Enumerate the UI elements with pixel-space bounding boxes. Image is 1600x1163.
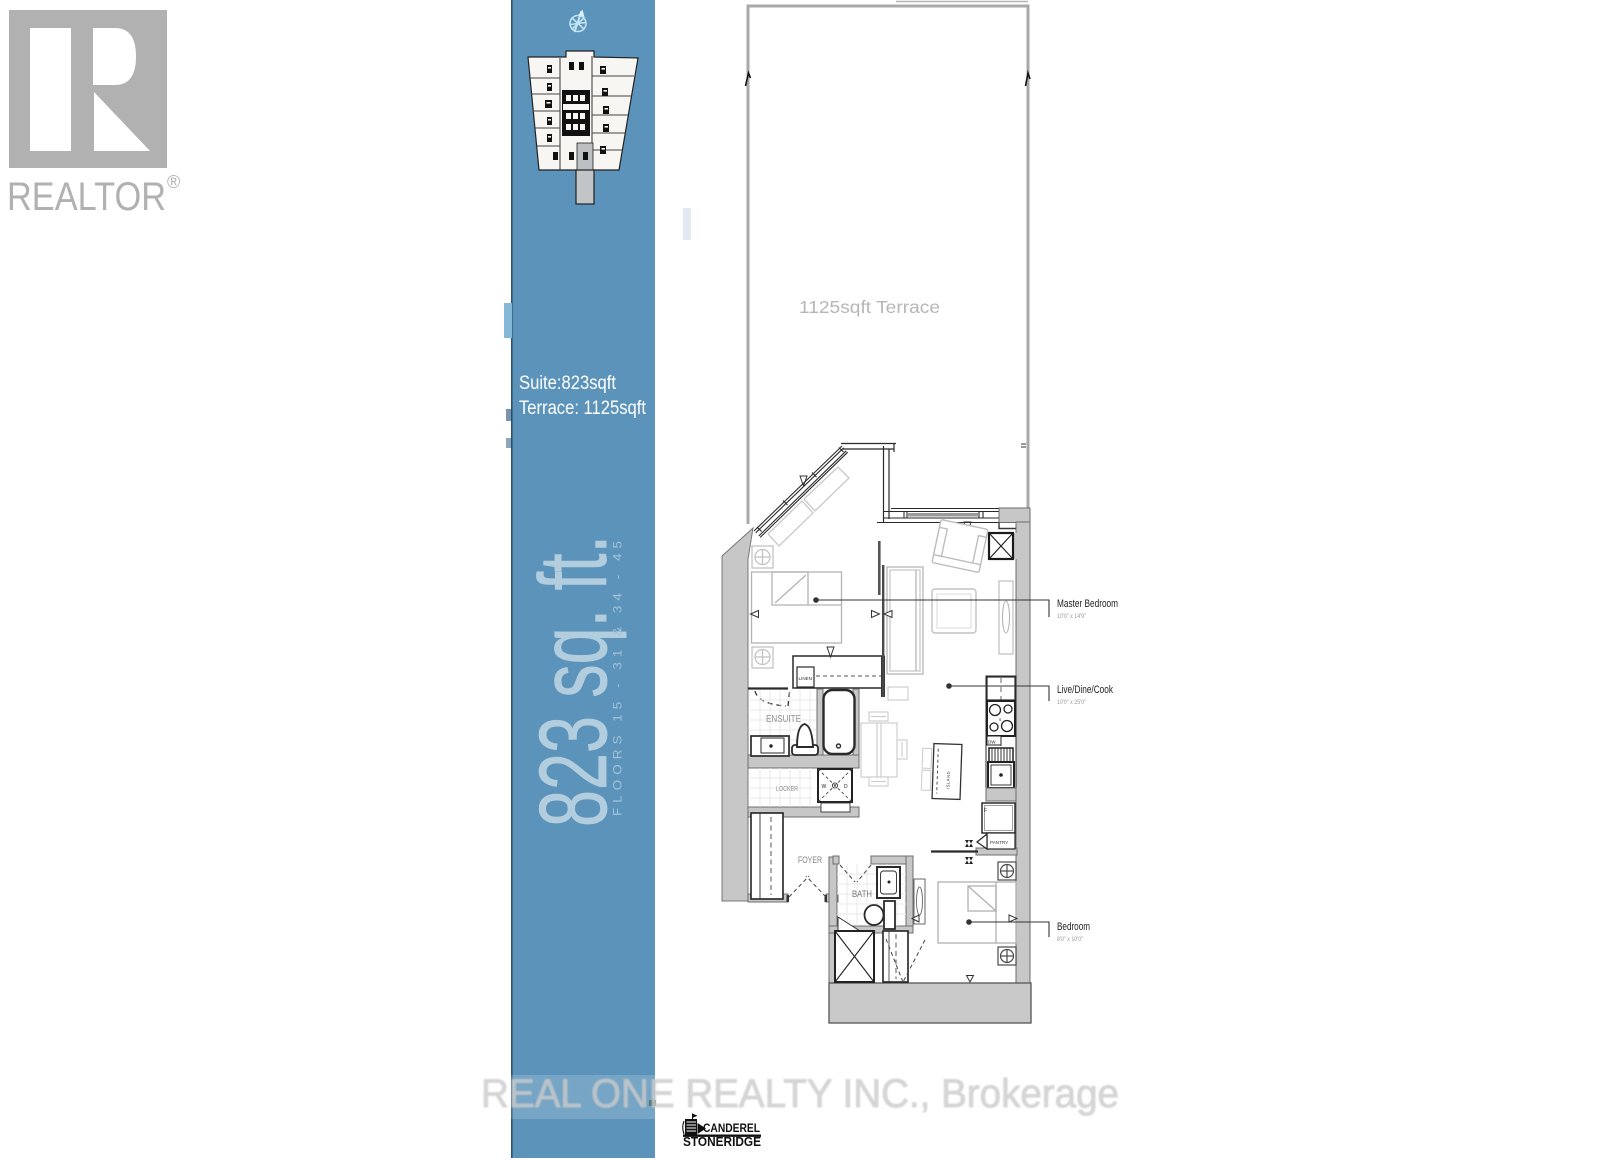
svg-text:1125sqft Terrace: 1125sqft Terrace (799, 297, 940, 317)
svg-text:FLOORS 15 - 31 & 34 - 45: FLOORS 15 - 31 & 34 - 45 (611, 536, 625, 816)
svg-text:REAL ONE REALTY INC., Brokerag: REAL ONE REALTY INC., Brokerage (481, 1072, 1119, 1116)
svg-text:FOYER: FOYER (798, 855, 822, 865)
svg-text:REALTOR: REALTOR (7, 175, 166, 219)
svg-text:D: D (844, 784, 848, 790)
svg-text:Bedroom: Bedroom (1057, 921, 1090, 933)
svg-text:®: ® (167, 172, 180, 192)
svg-text:STONERIDGE: STONERIDGE (683, 1135, 761, 1149)
svg-text:10'0" x 14'9": 10'0" x 14'9" (1057, 613, 1086, 620)
svg-text:ENSUITE: ENSUITE (766, 713, 801, 725)
svg-text:10'0" x 25'0": 10'0" x 25'0" (1057, 699, 1086, 706)
svg-text:BATH: BATH (852, 889, 872, 900)
svg-text:W: W (822, 784, 827, 790)
svg-text:F: F (984, 808, 987, 814)
svg-text:PANTRY: PANTRY (990, 840, 1008, 845)
svg-text:8'0" x 10'0": 8'0" x 10'0" (1057, 936, 1083, 943)
svg-text:Terrace: 1125sqft: Terrace: 1125sqft (519, 398, 647, 419)
svg-text:Suite:823sqft: Suite:823sqft (519, 373, 617, 394)
svg-text:CANDEREL: CANDEREL (703, 1121, 760, 1135)
svg-text:ISLAND: ISLAND (945, 771, 951, 789)
svg-text:LINEN: LINEN (799, 676, 813, 681)
svg-text:Live/Dine/Cook: Live/Dine/Cook (1057, 684, 1113, 696)
svg-text:DW: DW (988, 740, 996, 745)
svg-text:LOCKER: LOCKER (776, 786, 798, 793)
svg-text:Master Bedroom: Master Bedroom (1057, 598, 1118, 610)
